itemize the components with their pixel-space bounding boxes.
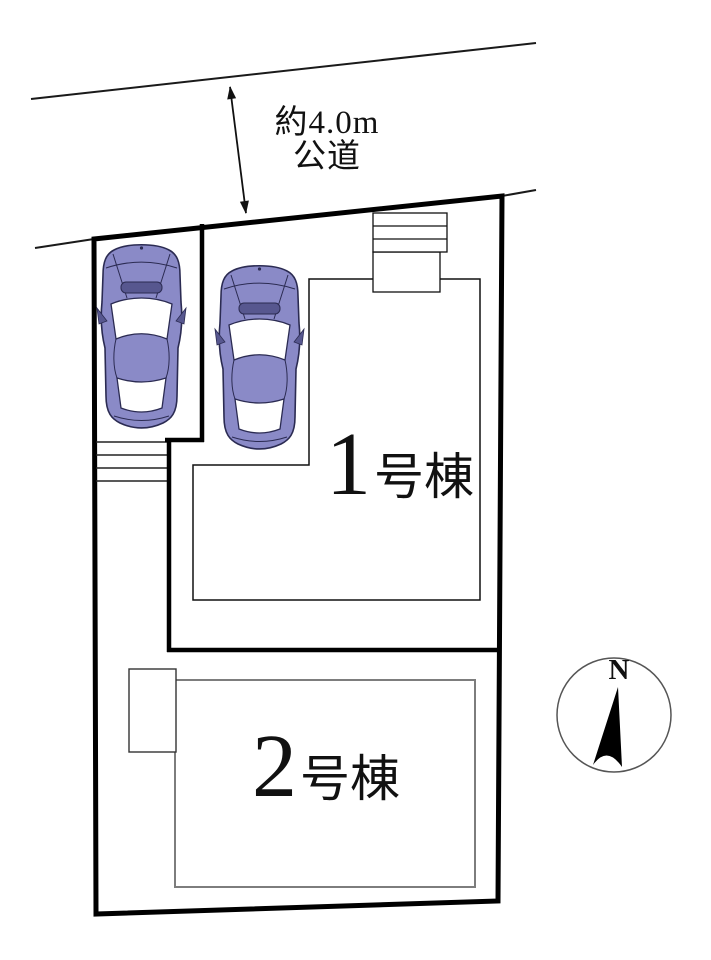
road-far-edge-line bbox=[31, 43, 536, 99]
building-1-entrance-steps bbox=[373, 213, 447, 292]
building-1-number: 1 bbox=[326, 421, 371, 509]
building-2-annex-outline bbox=[129, 669, 176, 752]
car-top-view-icon bbox=[215, 266, 304, 449]
road-label: 約4.0m 公道 bbox=[247, 106, 407, 174]
road-near-edge-left-line bbox=[35, 239, 94, 248]
building-1-label: 1 号棟 bbox=[326, 421, 474, 509]
compass-north-label: N bbox=[594, 655, 644, 685]
road-near-edge-right-line bbox=[502, 190, 536, 196]
road-width-arrow bbox=[227, 86, 249, 214]
building-2-number: 2 bbox=[252, 723, 297, 811]
site-plan-canvas: 約4.0m 公道 1 号棟 2 号棟 N bbox=[0, 0, 711, 960]
entrance-step-block bbox=[373, 213, 447, 252]
road-type-text: 公道 bbox=[247, 140, 407, 174]
building-2-label: 2 号棟 bbox=[252, 723, 400, 811]
road-width-text: 約4.0m bbox=[247, 106, 407, 140]
arrow-shaft bbox=[230, 87, 246, 213]
arrow-head-down-icon bbox=[240, 201, 249, 215]
building-1-suffix: 号棟 bbox=[374, 452, 474, 502]
car-top-view-icon bbox=[97, 245, 186, 428]
entrance-porch bbox=[373, 252, 440, 292]
arrow-head-up-icon bbox=[227, 86, 236, 100]
building-2-suffix: 号棟 bbox=[300, 754, 400, 804]
